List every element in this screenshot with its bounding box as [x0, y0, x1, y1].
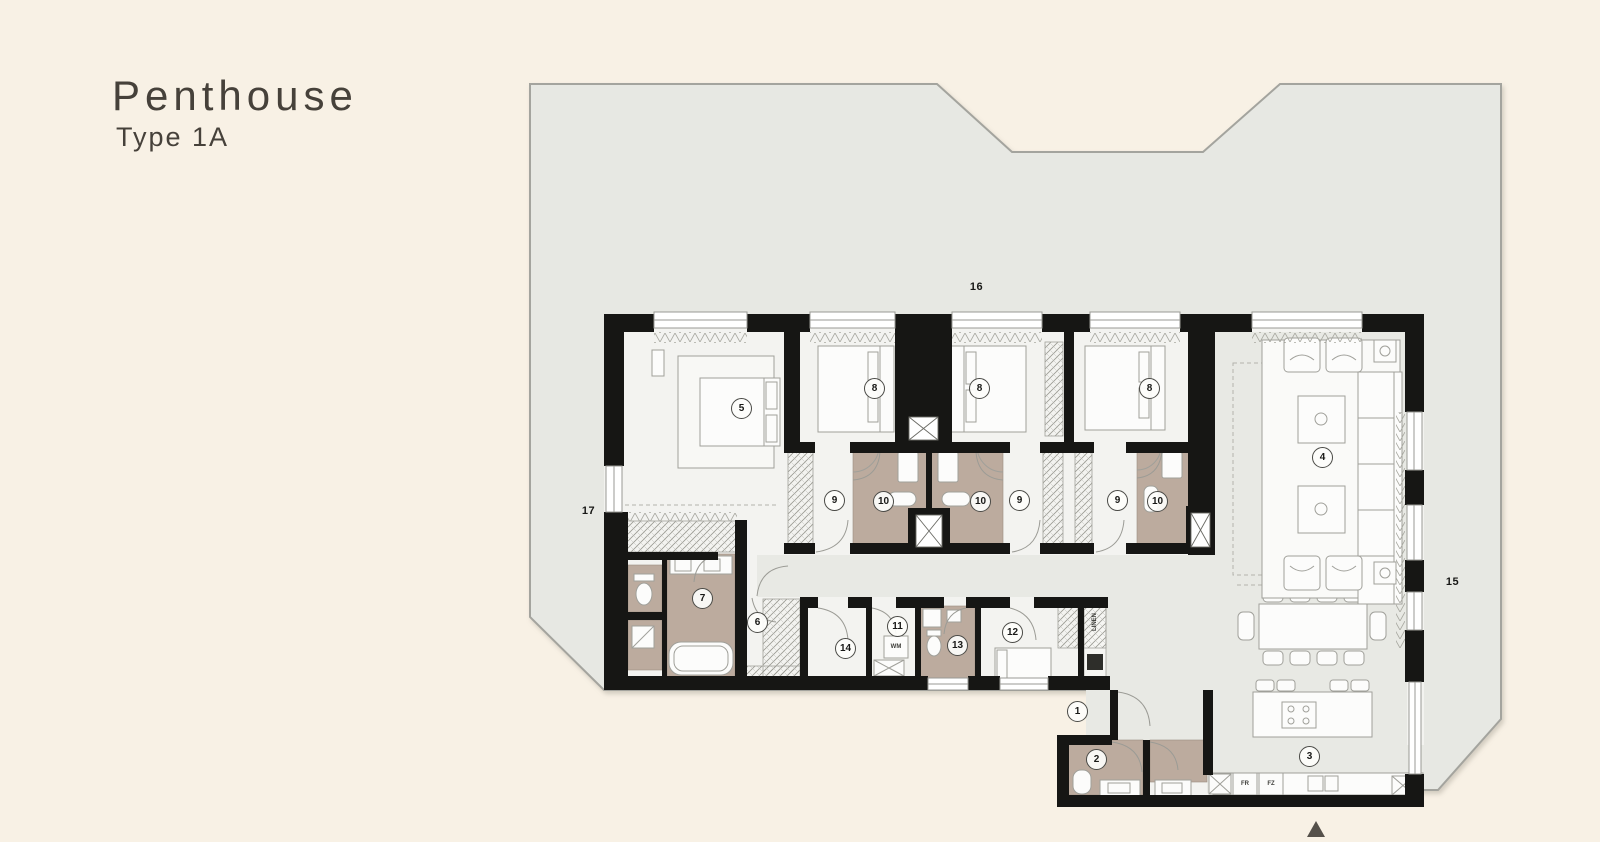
room-label-12: 12	[1002, 622, 1023, 643]
room-label-13: 13	[947, 635, 968, 656]
floorplan-page: Penthouse Type 1A	[0, 0, 1600, 842]
room-label-10: 10	[873, 491, 894, 512]
room-label-8: 8	[1139, 378, 1160, 399]
room-label-8: 8	[969, 378, 990, 399]
room-label-10: 10	[1147, 491, 1168, 512]
room-label-3: 3	[1299, 746, 1320, 767]
fixture-label-fr: FR	[1241, 781, 1249, 787]
room-label-17: 17	[579, 501, 598, 520]
room-label-10: 10	[970, 491, 991, 512]
room-label-6: 6	[747, 612, 768, 633]
room-label-11: 11	[887, 616, 908, 637]
room-label-9: 9	[1107, 490, 1128, 511]
room-label-14: 14	[835, 638, 856, 659]
room-label-7: 7	[692, 588, 713, 609]
room-label-5: 5	[731, 398, 752, 419]
fixture-label-linen: LINEN	[1092, 613, 1098, 631]
room-label-15: 15	[1443, 572, 1462, 591]
labels-layer: 123456788899910101011121314151617WMFRFZL…	[0, 0, 1600, 842]
room-label-9: 9	[1009, 490, 1030, 511]
room-label-16: 16	[967, 277, 986, 296]
fixture-label-wm: WM	[891, 644, 902, 650]
room-label-4: 4	[1312, 447, 1333, 468]
room-label-9: 9	[824, 490, 845, 511]
room-label-1: 1	[1067, 701, 1088, 722]
room-label-2: 2	[1086, 749, 1107, 770]
fixture-label-fz: FZ	[1267, 781, 1274, 787]
room-label-8: 8	[864, 378, 885, 399]
